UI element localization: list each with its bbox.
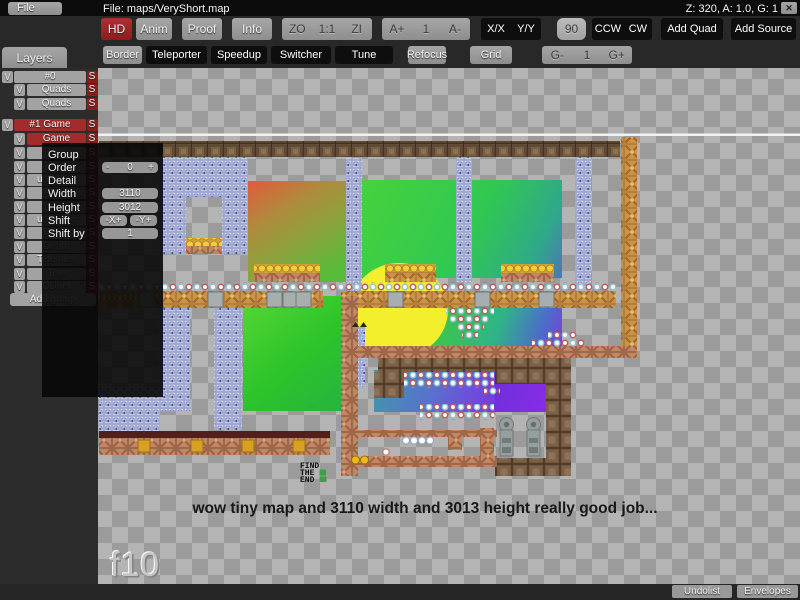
svg-text:END: END (300, 476, 315, 485)
